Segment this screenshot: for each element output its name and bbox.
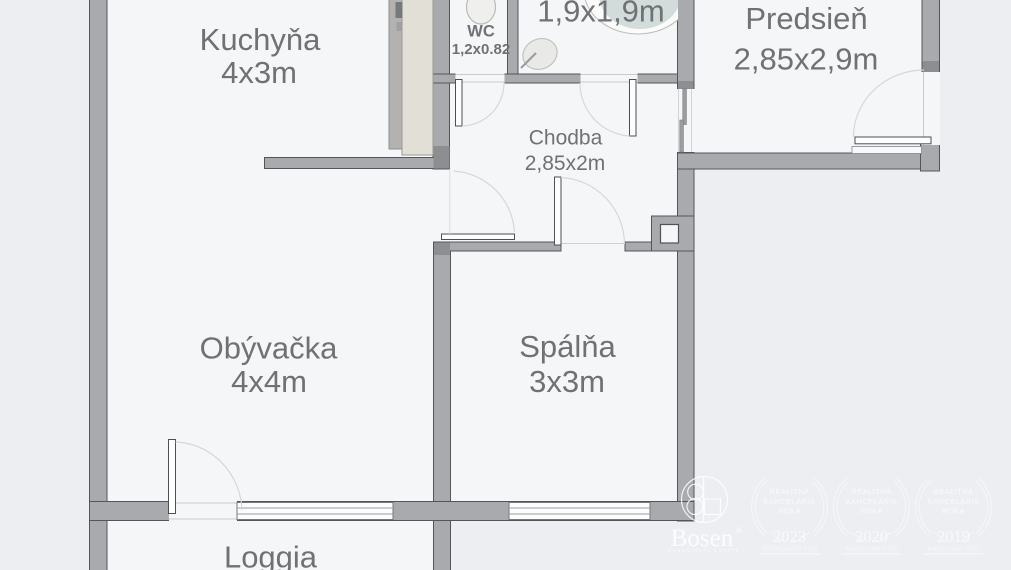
svg-text:2,85x2m: 2,85x2m: [525, 152, 606, 175]
svg-text:®: ®: [736, 526, 742, 535]
svg-text:ROKA: ROKA: [778, 507, 801, 516]
svg-text:Loggia: Loggia: [224, 540, 318, 570]
svg-text:REALITNÁ: REALITNÁ: [852, 487, 892, 496]
svg-text:Spálňa: Spálňa: [519, 329, 616, 364]
svg-text:BRATISLAVSKÝ KRAJ: BRATISLAVSKÝ KRAJ: [761, 546, 817, 553]
svg-text:WC: WC: [467, 23, 495, 41]
svg-text:2020: 2020: [855, 527, 888, 546]
svg-text:KANCELÁRIA: KANCELÁRIA: [846, 497, 898, 506]
svg-text:2,85x2,9m: 2,85x2,9m: [734, 42, 879, 77]
svg-text:3x3m: 3x3m: [529, 364, 605, 399]
svg-text:BOSEN REAL ESTATE: BOSEN REAL ESTATE: [668, 548, 740, 553]
svg-text:1,9x1,9m: 1,9x1,9m: [537, 0, 665, 29]
svg-text:KANCELÁRIA: KANCELÁRIA: [928, 497, 980, 506]
svg-text:2023: 2023: [773, 527, 806, 546]
svg-text:Predsieň: Predsieň: [745, 1, 867, 36]
svg-text:4x3m: 4x3m: [221, 55, 297, 90]
svg-text:KANCELÁRIA VÍŤAZ: KANCELÁRIA VÍŤAZ: [846, 545, 898, 553]
svg-text:KANCELÁRIA: KANCELÁRIA: [764, 497, 816, 506]
svg-text:KANCELÁRIA VÍŤAZ: KANCELÁRIA VÍŤAZ: [928, 545, 980, 553]
svg-text:REALITNÁ: REALITNÁ: [770, 487, 810, 496]
svg-text:ROKA: ROKA: [860, 507, 883, 516]
svg-text:ROKA: ROKA: [942, 507, 965, 516]
svg-text:REALITNÁ: REALITNÁ: [934, 487, 974, 496]
svg-text:1,2x0.82: 1,2x0.82: [452, 41, 510, 58]
svg-text:Obývačka: Obývačka: [200, 331, 339, 366]
svg-text:Chodba: Chodba: [529, 127, 603, 150]
svg-text:2019: 2019: [937, 527, 970, 546]
svg-text:4x4m: 4x4m: [231, 364, 307, 399]
svg-text:Kuchyňa: Kuchyňa: [200, 22, 321, 57]
